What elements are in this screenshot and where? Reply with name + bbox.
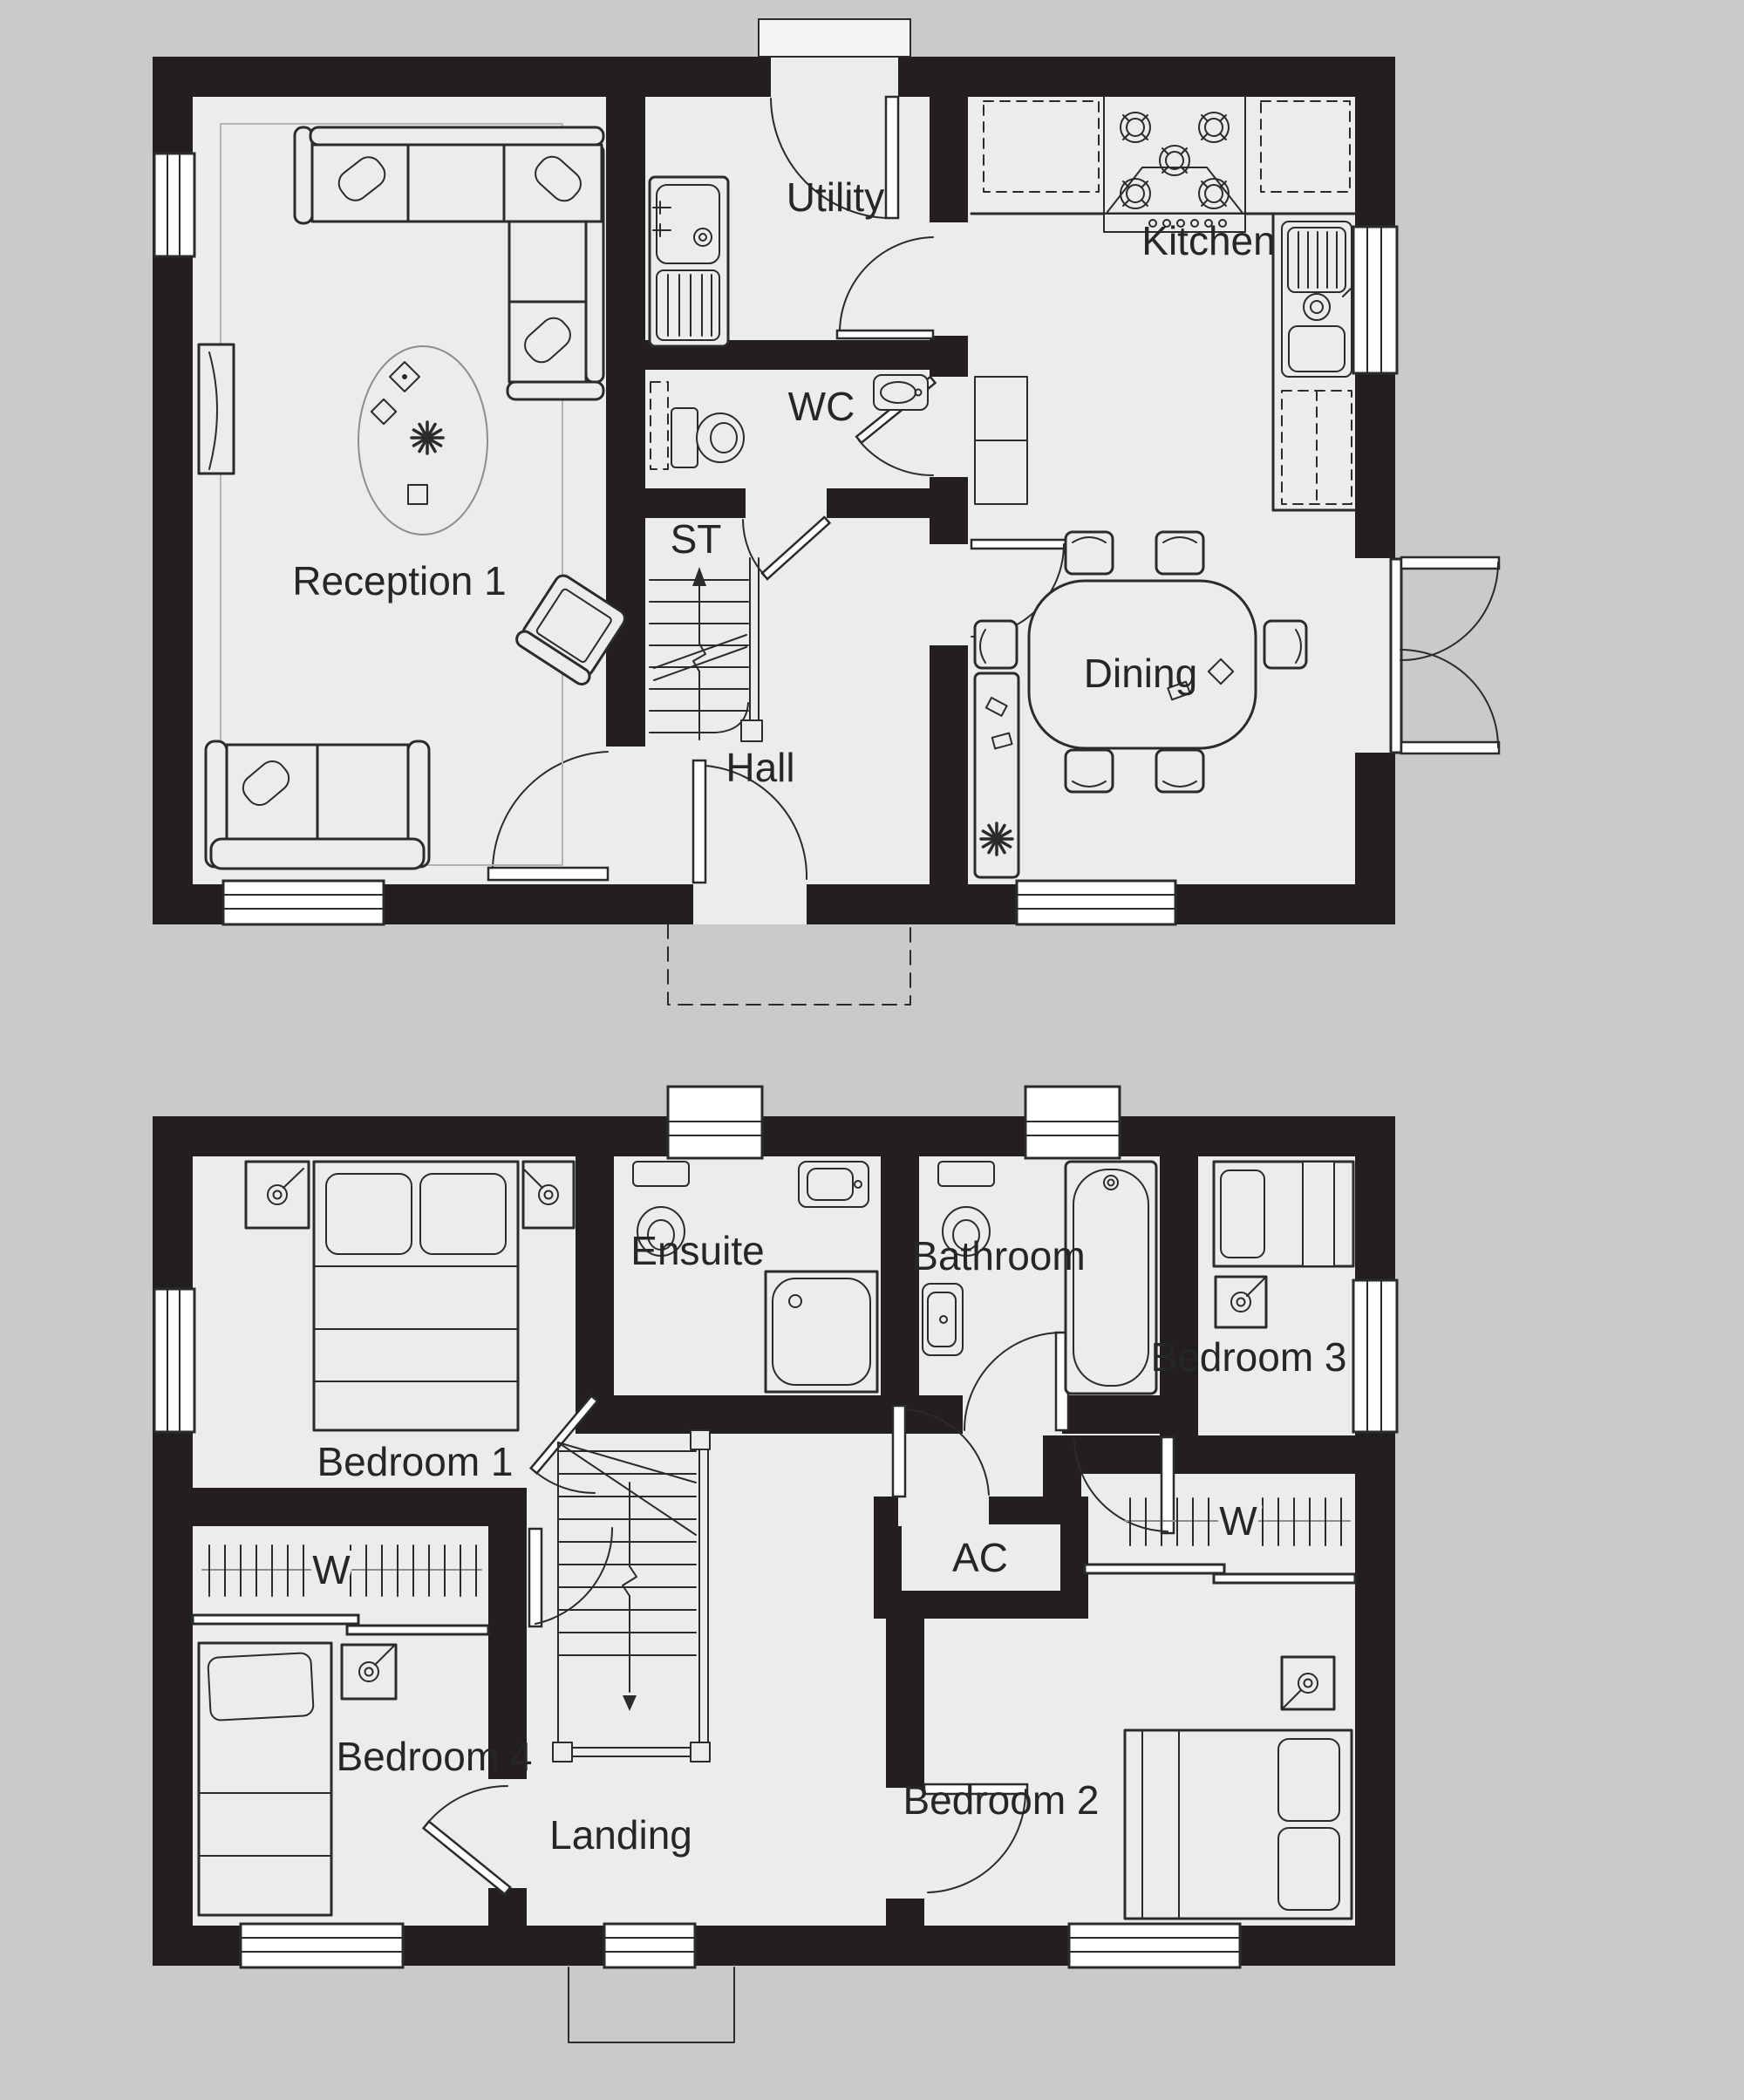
double-bed-icon [1125,1730,1352,1919]
dining-chair-icon [1066,532,1113,574]
room-label-bedroom3: Bedroom 3 [1150,1334,1346,1380]
floorplan-canvas: Reception 1 Utility WC ST Hall Kitchen D… [0,0,1744,2100]
bedroom2-window-icon [1069,1924,1240,1967]
sofa-icon [206,741,429,869]
single-bed-icon [1214,1162,1353,1266]
room-label-reception: Reception 1 [292,558,507,603]
rear-porch-slab [759,19,910,57]
room-label-utility: Utility [787,174,884,220]
utility-sink-icon [650,177,728,346]
bathroom-window-icon [1025,1087,1120,1158]
bedside-table-icon [246,1162,309,1228]
bedside-table-icon [523,1162,574,1228]
bedside-table-icon [1216,1277,1266,1327]
bathroom-basin-icon [923,1284,963,1355]
room-label-ensuite: Ensuite [630,1228,764,1273]
single-bed-icon [199,1643,331,1915]
dining-front-window-icon [1017,881,1175,924]
double-bed-icon [314,1162,518,1430]
bedside-table-icon [1282,1657,1334,1709]
room-label-wardrobe-right: W [1219,1498,1257,1544]
reception-front-window-icon [223,881,384,924]
room-label-wardrobe-left: W [312,1547,351,1592]
toilet-icon [671,408,744,467]
sideboard-icon [975,673,1018,877]
room-label-bedroom4: Bedroom 4 [336,1734,532,1779]
floorplan-page: Reception 1 Utility WC ST Hall Kitchen D… [0,0,1744,2100]
room-label-ac: AC [952,1535,1008,1580]
bedside-table-icon [342,1645,396,1699]
first-floor-plan: Bedroom 1 Ensuite Bathroom Bedroom 3 Bed… [153,1087,1397,2042]
dining-chair-icon [1066,750,1113,792]
landing-window-icon [604,1924,695,1967]
bedroom4-window-icon [241,1924,403,1967]
bedroom3-window-icon [1353,1280,1397,1432]
bedroom1-window-icon [154,1289,194,1432]
wc-basin-icon [874,375,928,410]
ensuite-window-icon [668,1087,762,1158]
dining-chair-icon [975,621,1017,668]
tv-unit-icon [199,344,234,474]
room-label-landing: Landing [549,1812,692,1858]
room-label-bedroom2: Bedroom 2 [903,1777,1099,1823]
dining-chair-icon [1156,532,1203,574]
room-label-dining: Dining [1084,651,1197,696]
room-label-st: ST [671,516,722,562]
dining-chair-icon [1156,750,1203,792]
dining-chair-icon [1264,621,1306,668]
room-label-bathroom: Bathroom [911,1233,1085,1278]
room-label-hall: Hall [726,745,794,790]
reception-side-window-icon [154,153,194,256]
kitchen-sink-icon [1282,222,1353,377]
ensuite-basin-icon [799,1162,869,1207]
room-label-wc: WC [788,384,855,429]
room-label-kitchen: Kitchen [1141,218,1275,263]
kitchen-side-window-icon [1353,227,1397,373]
room-label-bedroom1: Bedroom 1 [317,1439,513,1484]
ground-floor-plan: Reception 1 Utility WC ST Hall Kitchen D… [153,19,1499,1005]
